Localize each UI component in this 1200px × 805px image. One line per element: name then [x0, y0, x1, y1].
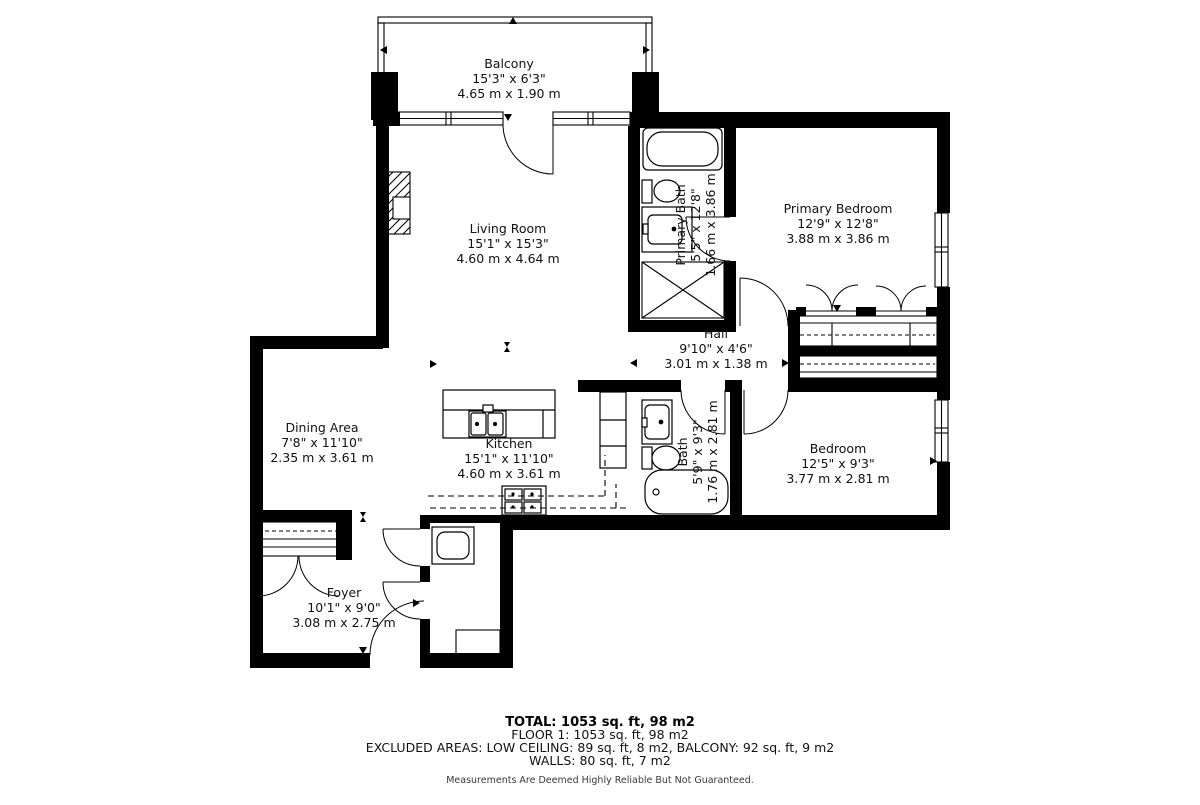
room-dims-ft: 5'9" x 9'3"	[690, 419, 705, 485]
room-label-foyer: Foyer 10'1" x 9'0" 3.08 m x 2.75 m	[292, 585, 395, 630]
room-name: Hall	[704, 326, 728, 341]
room-dims-ft: 7'8" x 11'10"	[281, 435, 362, 450]
window-bedroom	[935, 400, 948, 462]
room-dims-m: 1.76 m x 2.81 m	[705, 400, 720, 503]
window-primary-bedroom	[935, 213, 948, 287]
floor-plan-page: Balcony 15'3" x 6'3" 4.65 m x 1.90 m Liv…	[0, 0, 1200, 805]
room-dims-ft: 12'5" x 9'3"	[801, 456, 874, 471]
washer	[432, 527, 474, 564]
room-name: Bedroom	[810, 441, 867, 456]
room-label-bedroom: Bedroom 12'5" x 9'3" 3.77 m x 2.81 m	[786, 441, 889, 486]
room-dims-ft: 12'9" x 12'8"	[797, 216, 878, 231]
room-label-hall: Hall 9'10" x 4'6" 3.01 m x 1.38 m	[664, 326, 767, 371]
room-name: Primary Bedroom	[784, 201, 893, 216]
closet-double-door-2	[876, 286, 926, 311]
room-dims-m: 3.88 m x 3.86 m	[786, 231, 889, 246]
room-dims-m: 4.60 m x 3.61 m	[457, 466, 560, 481]
window-band-top-left	[398, 112, 503, 125]
area-summary: TOTAL: 1053 sq. ft, 98 m2 FLOOR 1: 1053 …	[366, 715, 834, 786]
room-dims-m: 3.01 m x 1.38 m	[664, 356, 767, 371]
balcony-door	[503, 124, 553, 174]
room-dims-m: 3.77 m x 2.81 m	[786, 471, 889, 486]
storage-shelf	[456, 630, 500, 655]
bedroom-door	[744, 390, 788, 434]
room-name: Dining Area	[285, 420, 358, 435]
room-dims-ft: 15'3" x 6'3"	[472, 71, 545, 86]
room-dims-ft: 5'5" x 12'8"	[688, 188, 703, 261]
room-dims-m: 4.60 m x 4.64 m	[456, 251, 559, 266]
summary-walls: WALLS: 80 sq. ft, 7 m2	[529, 753, 671, 768]
primary-bath-tub	[643, 128, 722, 170]
room-dims-m: 1.66 m x 3.86 m	[703, 173, 718, 276]
window-band-top-right	[553, 112, 630, 125]
room-label-living-room: Living Room 15'1" x 15'3" 4.60 m x 4.64 …	[456, 221, 559, 266]
closet-double-door-1	[806, 285, 858, 311]
room-name: Bath	[675, 437, 690, 466]
foyer-closet	[256, 522, 340, 556]
room-name: Kitchen	[486, 436, 533, 451]
room-label-kitchen: Kitchen 15'1" x 11'10" 4.60 m x 3.61 m	[457, 436, 560, 481]
room-name: Primary Bath	[673, 184, 688, 265]
kitchen-counter	[600, 392, 626, 468]
primary-bedroom-door	[740, 278, 788, 326]
room-dims-m: 2.35 m x 3.61 m	[270, 450, 373, 465]
room-label-primary-bedroom: Primary Bedroom 12'9" x 12'8" 3.88 m x 3…	[784, 201, 893, 246]
room-name: Balcony	[484, 56, 534, 71]
room-label-balcony: Balcony 15'3" x 6'3" 4.65 m x 1.90 m	[457, 56, 560, 101]
room-dims-ft: 9'10" x 4'6"	[679, 341, 752, 356]
room-label-primary-bath: Primary Bath 5'5" x 12'8" 1.66 m x 3.86 …	[673, 173, 718, 276]
bath-vanity-sink	[642, 400, 672, 444]
kitchen-stove	[502, 486, 546, 515]
room-label-dining-area: Dining Area 7'8" x 11'10" 2.35 m x 3.61 …	[270, 420, 373, 465]
bedroom-closets	[798, 311, 937, 378]
room-dims-m: 4.65 m x 1.90 m	[457, 86, 560, 101]
room-name: Foyer	[327, 585, 362, 600]
kitchen-island	[443, 390, 555, 438]
room-dims-ft: 15'1" x 15'3"	[467, 236, 548, 251]
room-dims-m: 3.08 m x 2.75 m	[292, 615, 395, 630]
utility-closet-door-1	[383, 529, 420, 566]
floor-plan-drawing: Balcony 15'3" x 6'3" 4.65 m x 1.90 m Liv…	[0, 0, 1200, 805]
room-dims-ft: 10'1" x 9'0"	[307, 600, 380, 615]
summary-disclaimer: Measurements Are Deemed Highly Reliable …	[446, 775, 754, 786]
room-dims-ft: 15'1" x 11'10"	[464, 451, 553, 466]
room-name: Living Room	[470, 221, 547, 236]
